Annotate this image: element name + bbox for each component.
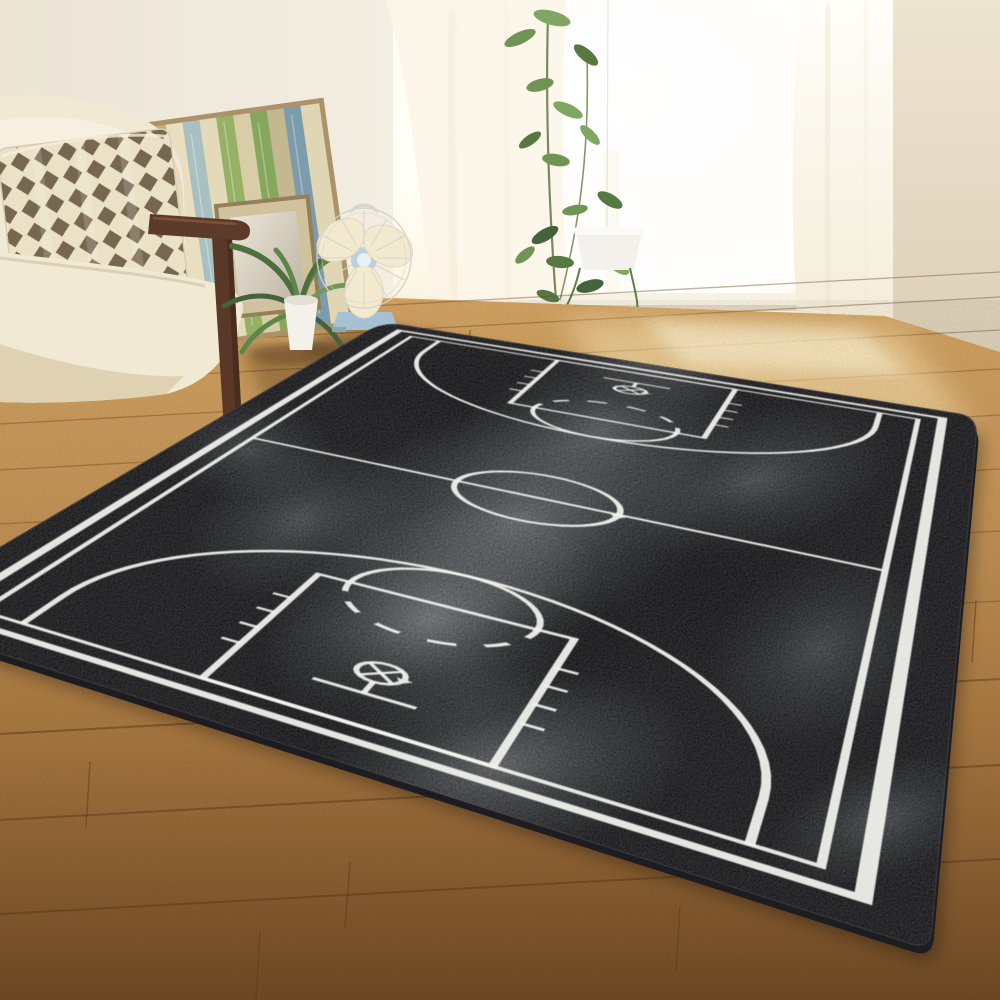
window-mullion bbox=[604, 150, 619, 302]
fan-foot-left bbox=[332, 327, 346, 332]
plant-pot bbox=[284, 300, 318, 350]
plant-pot-rim bbox=[284, 295, 318, 305]
hanging-planter-pot bbox=[576, 232, 642, 270]
hanging-planter-rim bbox=[574, 227, 644, 235]
right-wall bbox=[893, 0, 1000, 352]
court-line bbox=[674, 428, 680, 434]
curtain-right-drape bbox=[793, 0, 893, 340]
fan-hub-cap bbox=[357, 253, 371, 267]
photo-canvas bbox=[0, 0, 1000, 1000]
living-room-scene bbox=[0, 0, 1000, 1000]
